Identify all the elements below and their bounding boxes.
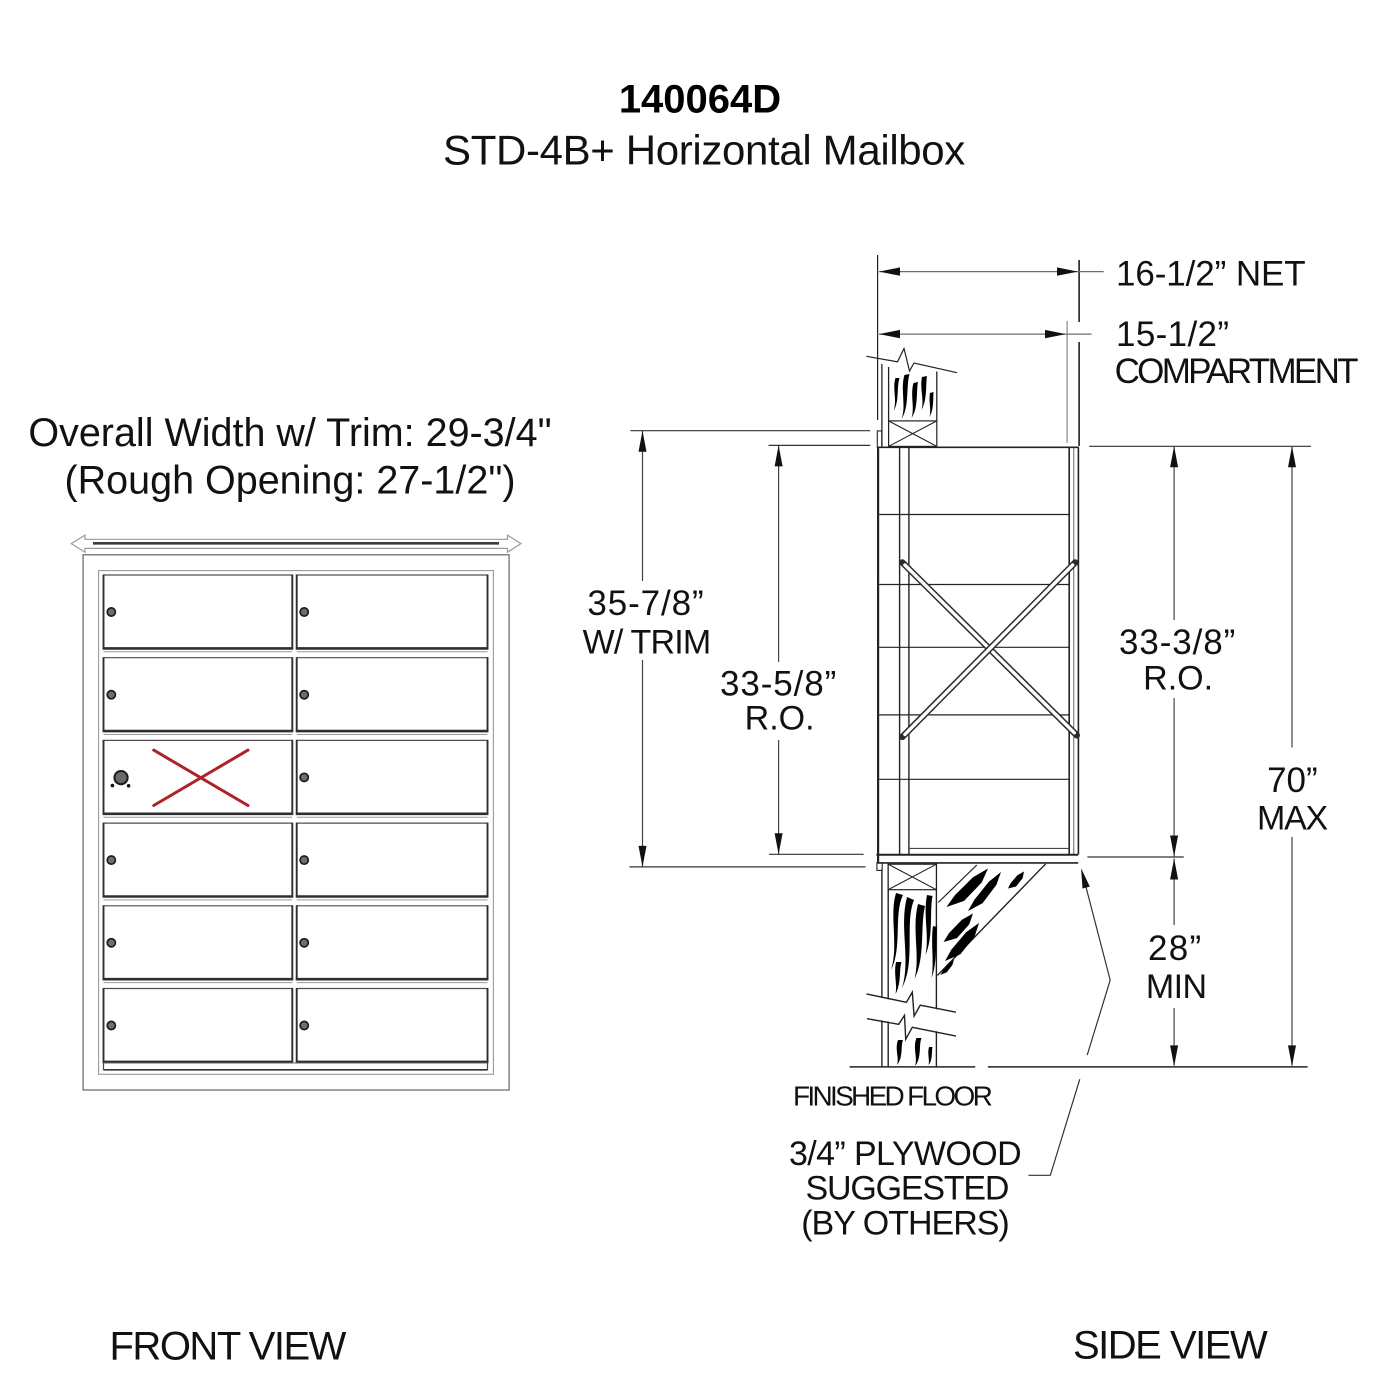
svg-text:(Rough Opening: 27-1/2"): (Rough Opening: 27-1/2") xyxy=(65,459,516,503)
svg-text:(BY OTHERS): (BY OTHERS) xyxy=(801,1204,1009,1242)
svg-text:33-5/8”: 33-5/8” xyxy=(720,664,837,703)
svg-text:FRONT VIEW: FRONT VIEW xyxy=(110,1325,347,1369)
svg-text:W/ TRIM: W/ TRIM xyxy=(583,624,711,662)
svg-text:R.O.: R.O. xyxy=(1143,660,1213,698)
svg-text:SUGGESTED: SUGGESTED xyxy=(806,1170,1009,1208)
svg-text:35-7/8”: 35-7/8” xyxy=(587,584,704,623)
svg-text:70”: 70” xyxy=(1267,761,1318,800)
svg-text:R.O.: R.O. xyxy=(745,700,815,738)
svg-text:MAX: MAX xyxy=(1257,800,1328,838)
svg-text:Overall Width w/ Trim: 29-3/4": Overall Width w/ Trim: 29-3/4" xyxy=(28,411,551,455)
svg-text:STD-4B+ Horizontal Mailbox: STD-4B+ Horizontal Mailbox xyxy=(443,126,965,173)
svg-text:28”: 28” xyxy=(1148,929,1203,968)
svg-text:SIDE VIEW: SIDE VIEW xyxy=(1073,1324,1268,1368)
svg-text:15-1/2”: 15-1/2” xyxy=(1116,315,1229,354)
svg-text:33-3/8”: 33-3/8” xyxy=(1119,623,1236,662)
svg-text:16-1/2” NET: 16-1/2” NET xyxy=(1116,254,1306,293)
svg-text:3/4” PLYWOOD: 3/4” PLYWOOD xyxy=(789,1135,1021,1173)
svg-text:COMPARTMENT: COMPARTMENT xyxy=(1115,352,1359,391)
svg-text:140064D: 140064D xyxy=(619,78,781,122)
svg-text:MIN: MIN xyxy=(1146,968,1207,1006)
svg-text:FINISHED FLOOR: FINISHED FLOOR xyxy=(793,1080,992,1111)
